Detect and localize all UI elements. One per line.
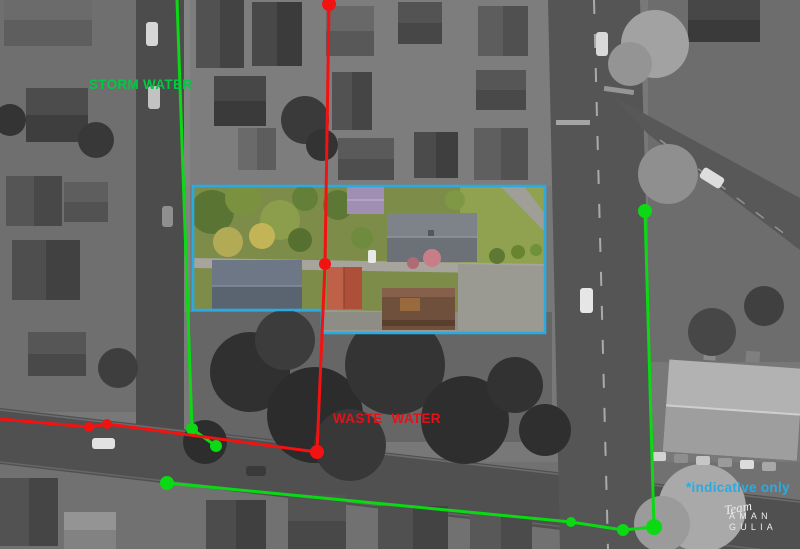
storm-water-line-node [210,440,222,452]
storm-water-line-node [646,519,662,535]
agent-logo: Team AMAN GULIA [720,498,800,533]
waste-water-line-node [319,258,331,270]
waste-water-line-node [102,419,112,429]
storm-water-label: STORM WATER [89,77,192,92]
indicative-only-note: *indicative only [686,480,790,495]
storm-water-line-node [617,524,629,536]
logo-name-line2: GULIA [729,522,800,533]
waste-water-line-node [310,445,324,459]
storm-water-line [177,0,216,446]
storm-water-line-node [186,423,198,435]
storm-water-line-node [638,204,652,218]
waste-water-label: WASTE WATER [333,411,441,426]
storm-water-line-node [160,476,174,490]
storm-water-line-node [566,517,576,527]
storm-water-line [167,211,654,530]
aerial-site-map: STORM WATER WASTE WATER *indicative only… [0,0,800,549]
property-boundary [193,186,545,333]
waste-water-line-node [84,422,94,432]
waste-water-line [0,4,329,452]
waste-water-line-node [322,0,336,11]
